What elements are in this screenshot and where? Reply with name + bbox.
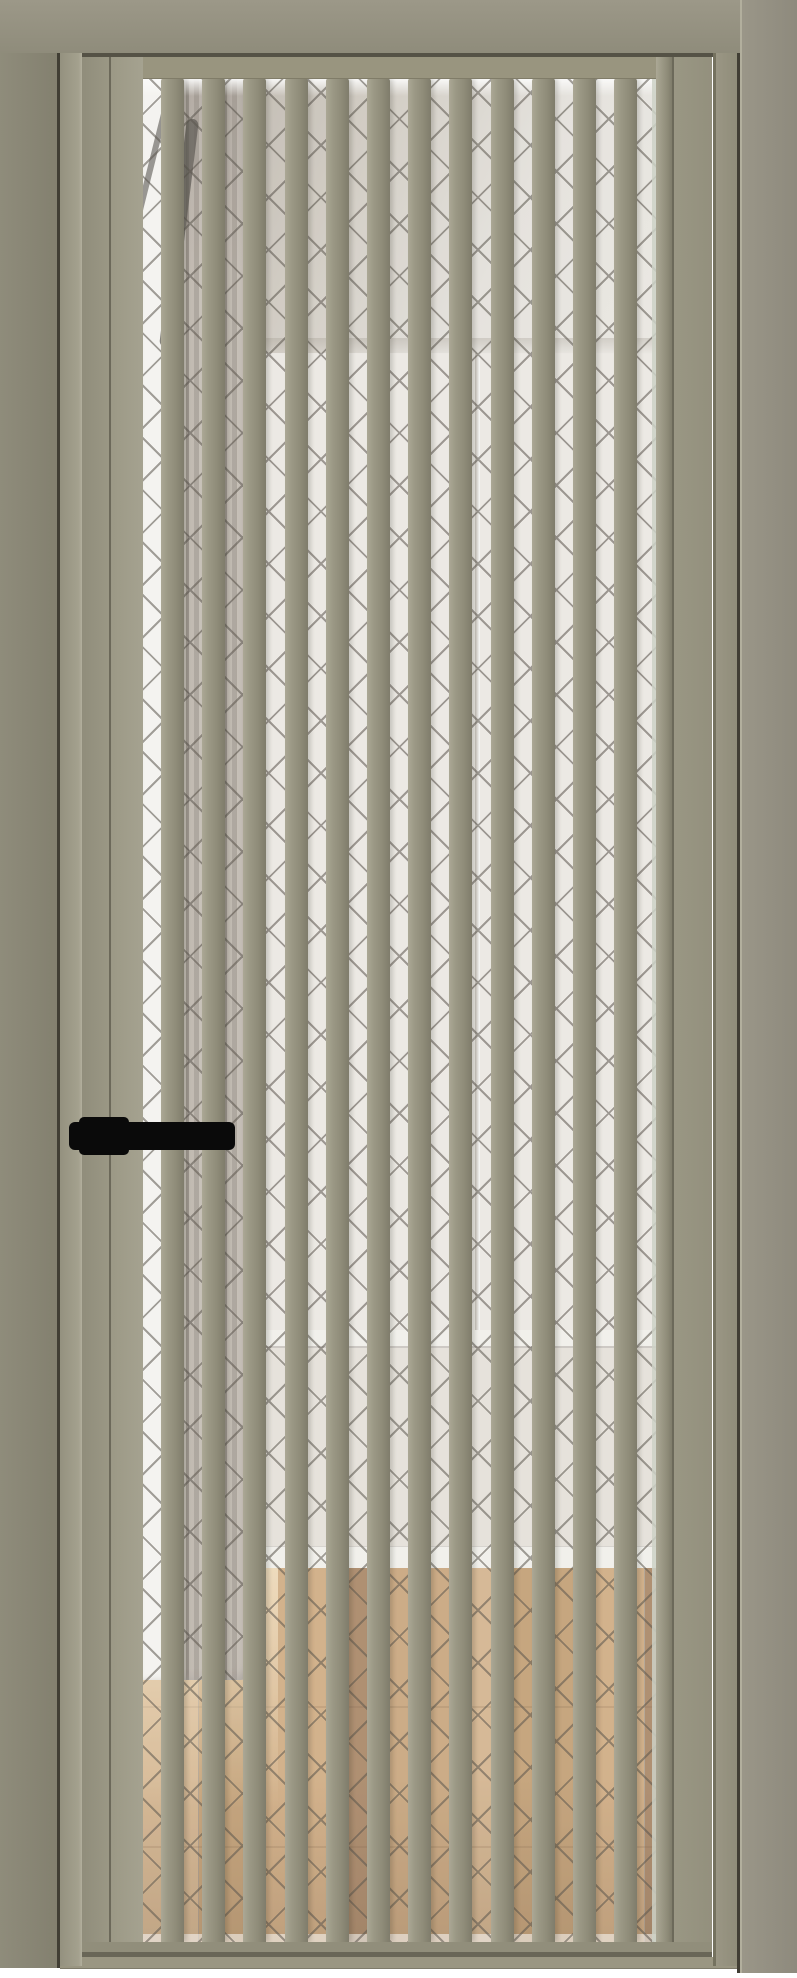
- stile-inner-bar: [656, 57, 672, 1942]
- door-slat: [449, 78, 472, 1942]
- leaf-right-stile: [656, 57, 712, 1942]
- door-slat: [243, 78, 266, 1942]
- frame-head-groove: [57, 53, 716, 57]
- leaf-left-stile: [82, 57, 143, 1942]
- leaf-bottom-rail: [82, 1942, 712, 1952]
- stile-groove: [109, 57, 111, 1942]
- door-slat: [161, 78, 184, 1942]
- door-slat: [408, 78, 431, 1942]
- frame-casing-top: [0, 0, 797, 53]
- frame-sill: [60, 1957, 740, 1969]
- door-slat: [202, 78, 225, 1942]
- door-slat: [285, 78, 308, 1942]
- leaf-top-rail: [82, 57, 712, 79]
- door-slat: [326, 78, 349, 1942]
- door-handle-lever: [69, 1122, 235, 1150]
- door-slat: [491, 78, 514, 1942]
- door-slat: [367, 78, 390, 1942]
- stile-groove: [672, 57, 674, 1942]
- door-slat: [573, 78, 596, 1942]
- door-product-image: [0, 0, 797, 1978]
- door-slat: [532, 78, 555, 1942]
- frame-jamb-right: [713, 53, 737, 1966]
- door-slat: [614, 78, 637, 1942]
- frame-jamb-left: [60, 53, 82, 1966]
- frame-casing-right: [740, 0, 797, 1973]
- frame-casing-left: [0, 0, 57, 1968]
